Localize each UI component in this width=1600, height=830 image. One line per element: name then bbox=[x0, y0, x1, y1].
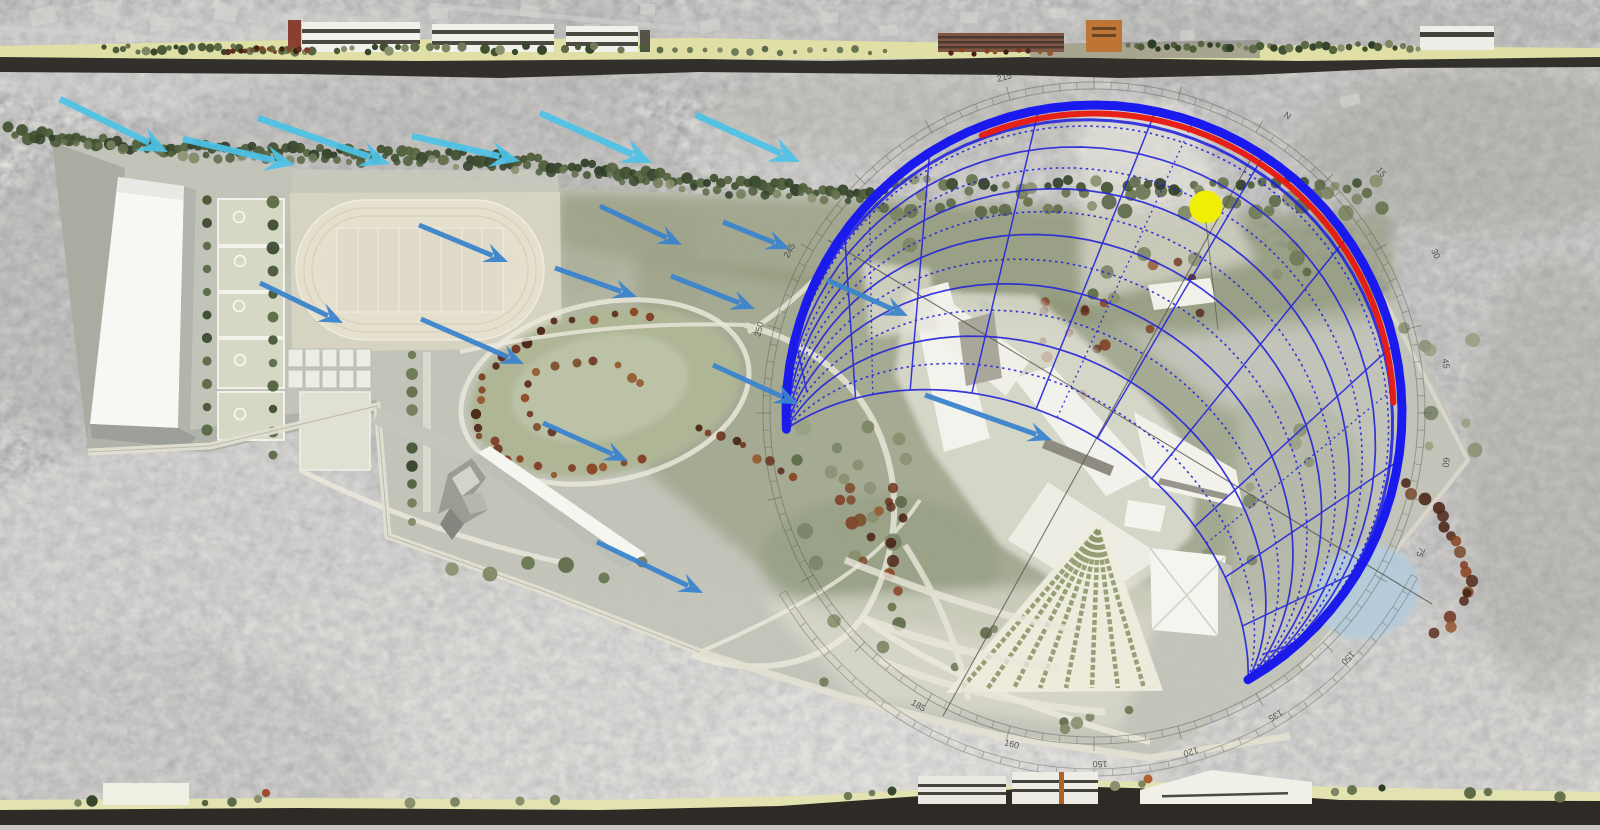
svg-text:60: 60 bbox=[1440, 457, 1451, 468]
svg-text:150: 150 bbox=[1092, 759, 1107, 769]
svg-text:45: 45 bbox=[1440, 358, 1451, 369]
